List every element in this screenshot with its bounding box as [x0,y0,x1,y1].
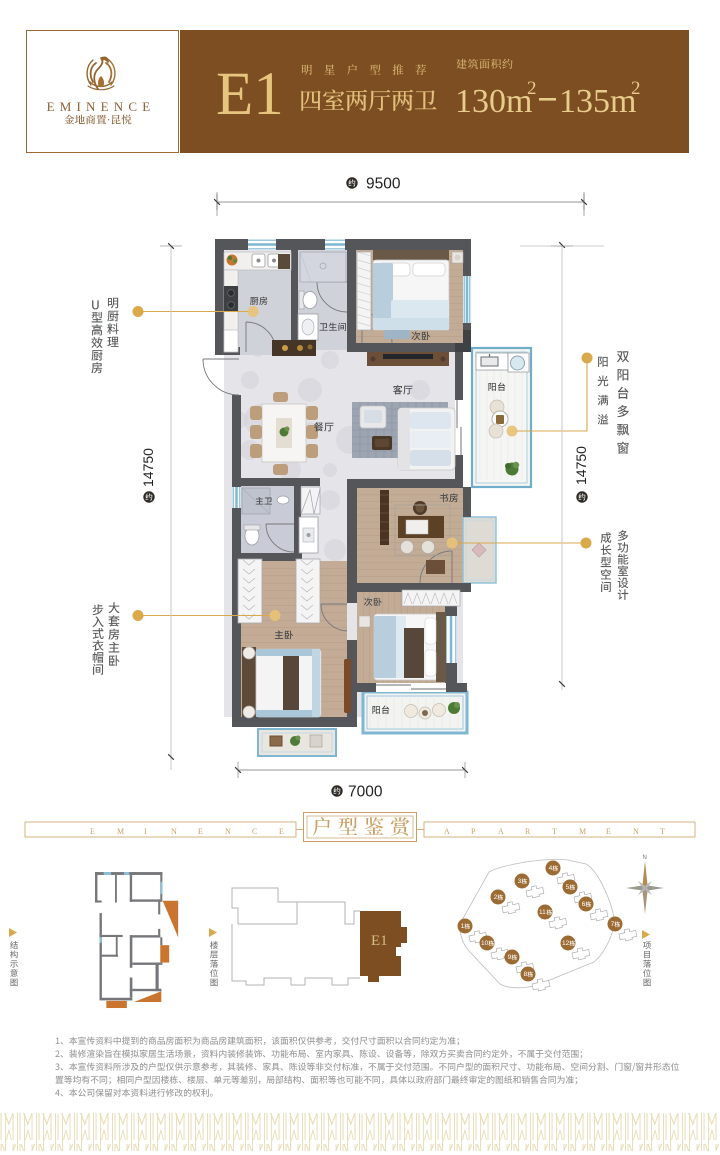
svg-text:5: 5 [566,884,570,891]
svg-text:E: E [90,827,95,836]
svg-text:P: P [471,827,476,836]
svg-text:N: N [633,827,639,836]
svg-text:N: N [225,827,231,836]
svg-text:A: A [444,827,450,836]
svg-text:130m: 130m [455,83,532,120]
svg-text:E: E [198,827,203,836]
svg-text:2: 2 [631,78,641,99]
svg-text:10: 10 [481,940,489,947]
svg-text:3: 3 [518,878,522,885]
svg-text:M: M [579,827,586,836]
svg-text:N: N [171,827,177,836]
svg-text:E: E [279,827,284,836]
svg-text:A: A [498,827,504,836]
svg-text:7000: 7000 [348,784,383,801]
svg-text:9500: 9500 [366,176,401,193]
svg-text:EMINENCE: EMINENCE [47,99,156,114]
svg-text:2: 2 [494,894,498,901]
svg-text:8: 8 [524,971,528,978]
svg-text:C: C [252,827,257,836]
svg-text:T: T [660,827,665,836]
svg-text:7: 7 [611,921,615,928]
svg-text:I: I [144,827,147,836]
svg-text:6: 6 [582,901,586,908]
svg-text:12: 12 [562,940,570,947]
svg-text:1: 1 [461,923,465,930]
svg-text:135m: 135m [559,83,636,120]
svg-text:2: 2 [527,78,537,99]
svg-text:N: N [643,855,647,861]
svg-text:9: 9 [508,954,512,961]
svg-text:14750: 14750 [140,448,156,487]
svg-text:E1: E1 [371,933,388,949]
svg-text:E1: E1 [216,61,284,128]
svg-text:4: 4 [549,865,553,872]
svg-text:T: T [552,827,557,836]
svg-text:E: E [606,827,611,836]
svg-text:R: R [525,827,531,836]
svg-text:14750: 14750 [573,446,589,485]
svg-text:11: 11 [539,909,546,916]
svg-text:M: M [117,827,124,836]
